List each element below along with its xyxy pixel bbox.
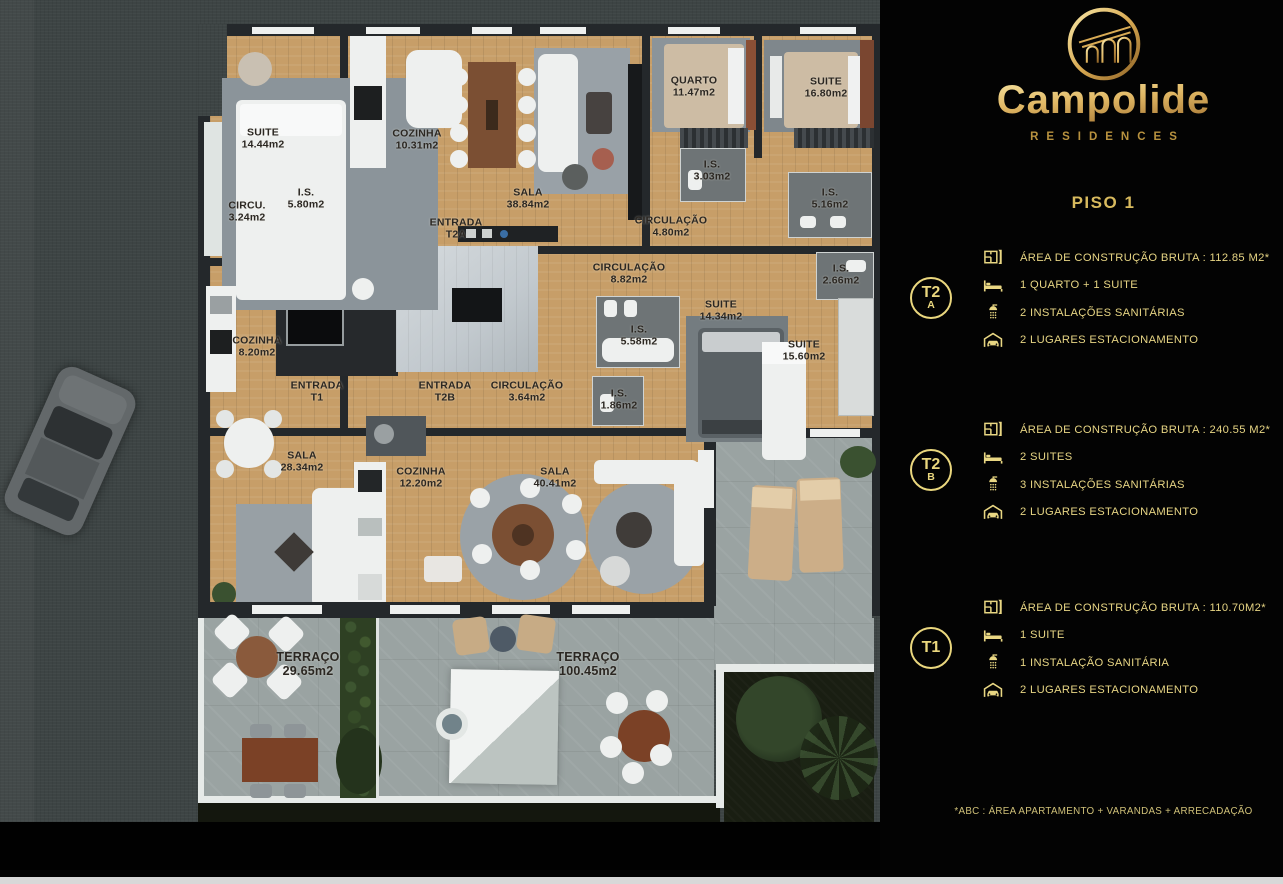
plan-shape: [985, 636, 1002, 639]
room-area: 40.41m2: [534, 478, 577, 490]
plan-shape: [989, 478, 997, 482]
spec-row: ÁREA DE CONSTRUÇÃO BRUTA : 110.70M2*: [980, 594, 1279, 622]
plan-shape: [358, 574, 382, 600]
room-name: I.S.: [601, 388, 638, 400]
plan-shape: [680, 128, 748, 148]
room-label: I.S.3.03m2: [694, 159, 731, 183]
plan-shape: [714, 618, 874, 670]
plan-shape: [592, 148, 614, 170]
plan-shape: [492, 605, 550, 614]
plan-shape: [500, 230, 508, 238]
parking-icon: [980, 679, 1006, 701]
room-name: SALA: [507, 187, 550, 199]
plan-shape: [252, 27, 314, 34]
room-label: ENTRADAT2A: [430, 217, 483, 241]
wardrobe: [838, 298, 874, 416]
room-name: SUITE: [805, 76, 848, 88]
plan-shape: [984, 424, 996, 435]
room-label: TERRAÇO100.45m2: [556, 650, 619, 678]
unit-spec-t1: T1ÁREA DE CONSTRUÇÃO BRUTA : 110.70M2*1 …: [880, 592, 1283, 704]
plan-shape: [450, 150, 468, 168]
plan-shape: [830, 216, 846, 228]
plan-shape: [800, 479, 841, 500]
badge-sublabel: B: [927, 472, 935, 483]
room-name: ENTRADA: [419, 380, 472, 392]
plan-shape: [604, 300, 617, 317]
plan-shape: [985, 631, 1002, 642]
spec-row: 2 LUGARES ESTACIONAMENTO: [980, 499, 1279, 527]
spec-row: ÁREA DE CONSTRUÇÃO BRUTA : 112.85 M2*: [980, 244, 1279, 272]
plan-shape: [198, 618, 204, 800]
plan-shape: [840, 446, 876, 478]
unit-badge: T1: [910, 627, 952, 669]
room-name: TERRAÇO: [276, 650, 339, 664]
plan-shape: [993, 305, 997, 306]
sofa: [538, 54, 578, 172]
plan-shape: [986, 455, 990, 457]
plan-shape: [1079, 27, 1130, 63]
room-area: 2.66m2: [823, 275, 860, 287]
plan-shape: [668, 27, 720, 34]
room-name: SUITE: [700, 299, 743, 311]
plan-shape: [512, 524, 534, 546]
room-area: 5.16m2: [812, 199, 849, 211]
plan-shape: [238, 52, 272, 86]
spec-row: 2 LUGARES ESTACIONAMENTO: [980, 327, 1279, 355]
plan-shape: [983, 475, 1003, 495]
room-area: 1.86m2: [601, 400, 638, 412]
plan-shape: [984, 602, 990, 613]
room-area: 4.80m2: [635, 227, 708, 239]
spec-row: 1 SUITE: [980, 622, 1279, 650]
kitchen-island: [406, 50, 462, 128]
plan-shape: [1086, 46, 1097, 62]
plan-shape: [516, 614, 557, 655]
plan-shape: [989, 694, 991, 696]
plan-shape: [376, 618, 379, 798]
room-name: COZINHA: [232, 335, 281, 347]
room-label: TERRAÇO29.65m2: [276, 650, 339, 678]
plan-shape: [728, 48, 744, 124]
room-area: T2A: [430, 229, 483, 241]
info-panel: Campolide RESIDENCES PISO 1 *ABC : ÁREA …: [880, 0, 1283, 884]
plan-shape: [982, 624, 1004, 646]
plan-shape: [450, 68, 468, 86]
room-label: SUITE14.34m2: [700, 299, 743, 323]
plan-shape: [198, 796, 720, 803]
plan-shape: [354, 86, 382, 120]
plan-shape: [990, 489, 992, 491]
plan-shape: [982, 501, 1004, 523]
room-area: 100.45m2: [556, 664, 619, 678]
plan-shape: [450, 96, 468, 114]
room-name: SUITE: [783, 339, 826, 351]
room-label: COZINHA8.20m2: [232, 335, 281, 359]
plan-shape: [216, 410, 234, 428]
badge-label: T2: [922, 457, 941, 472]
room-label: COZINHA12.20m2: [396, 466, 445, 490]
room-label: QUARTO11.47m2: [671, 75, 718, 99]
unit-spec-t2b: T2BÁREA DE CONSTRUÇÃO BRUTA : 240.55 M2*…: [880, 414, 1283, 526]
room-label: CIRCULAÇÃO3.64m2: [491, 380, 564, 404]
plan-shape: [986, 283, 990, 285]
plan-shape: [810, 429, 860, 437]
room-area: 8.20m2: [232, 347, 281, 359]
plan-shape: [985, 286, 1002, 289]
unit-spec-t2a: T2AÁREA DE CONSTRUÇÃO BRUTA : 112.85 M2*…: [880, 242, 1283, 354]
spec-text: 2 INSTALAÇÕES SANITÁRIAS: [1020, 307, 1185, 319]
plan-shape: [995, 667, 997, 669]
plan-shape: [472, 544, 492, 564]
plan-shape: [989, 655, 997, 668]
fountain: [436, 708, 468, 740]
plan-shape: [284, 784, 306, 798]
room-area: 29.65m2: [276, 664, 339, 678]
room-label: SALA38.84m2: [507, 187, 550, 211]
plan-shape: [746, 40, 756, 130]
room-name: I.S.: [288, 187, 325, 199]
shower-icon: [980, 475, 1006, 495]
plan-shape: [992, 664, 994, 666]
room-area: 3.03m2: [694, 171, 731, 183]
room-label: SUITE15.60m2: [783, 339, 826, 363]
room-area: 14.44m2: [242, 139, 285, 151]
plan-shape: [622, 762, 644, 784]
room-label: I.S.5.16m2: [812, 187, 849, 211]
palm-tree: [800, 716, 878, 800]
badge-sublabel: A: [927, 300, 935, 311]
plan-shape: [0, 822, 880, 884]
room-label: I.S.2.66m2: [823, 263, 860, 287]
aqueduct-logo-icon: [1065, 5, 1143, 83]
plan-shape: [987, 513, 998, 519]
plan-shape: [983, 653, 1003, 673]
spec-row: 1 INSTALAÇÃO SANITÁRIA: [980, 649, 1279, 677]
plan-shape: [998, 250, 1001, 264]
room-label: SALA40.41m2: [534, 466, 577, 490]
plan-shape: [518, 150, 536, 168]
room-name: I.S.: [621, 324, 658, 336]
room-area: 12.20m2: [396, 478, 445, 490]
plan-shape: [996, 344, 998, 346]
plan-shape: [982, 679, 1004, 701]
plan-shape: [990, 312, 996, 319]
room-name: QUARTO: [671, 75, 718, 87]
plan-shape: [698, 450, 714, 508]
room-name: CIRCULAÇÃO: [635, 215, 708, 227]
plan-shape: [992, 314, 994, 316]
floorplan-icon: [980, 419, 1006, 440]
plan-shape: [216, 460, 234, 478]
plan-shape: [1069, 10, 1138, 79]
parking-icon: [980, 501, 1006, 523]
room-area: 5.58m2: [621, 336, 658, 348]
plan-shape: [987, 341, 998, 347]
plan-shape: [562, 494, 582, 514]
spec-text: 2 LUGARES ESTACIONAMENTO: [1020, 684, 1198, 696]
plan-shape: [995, 314, 997, 316]
floorplan-icon: [980, 597, 1006, 618]
plan-shape: [984, 252, 990, 263]
floorplan-render: SUITE14.44m2COZINHA10.31m2CIRCU.3.24m2I.…: [0, 0, 880, 884]
plan-shape: [984, 252, 996, 263]
room-label: CIRCULAÇÃO4.80m2: [635, 215, 708, 239]
plan-shape: [482, 229, 492, 238]
plan-shape: [990, 317, 992, 319]
elevator: [452, 288, 502, 322]
spec-row: 3 INSTALAÇÕES SANITÁRIAS: [980, 471, 1279, 499]
room-name: ENTRADA: [291, 380, 344, 392]
spec-text: 2 SUITES: [1020, 451, 1073, 463]
spec-text: 1 INSTALAÇÃO SANITÁRIA: [1020, 657, 1169, 669]
plan-shape: [210, 330, 232, 354]
plan-shape: [284, 724, 306, 738]
room-label: SUITE16.80m2: [805, 76, 848, 100]
plan-shape: [752, 487, 793, 509]
floorplan-icon: [980, 247, 1006, 268]
plan-shape: [716, 664, 724, 808]
room-name: SALA: [534, 466, 577, 478]
room-area: T1: [291, 392, 344, 404]
plan-shape: [572, 605, 630, 614]
plan-shape: [650, 744, 672, 766]
plan-shape: [860, 40, 874, 132]
room-area: 16.80m2: [805, 88, 848, 100]
room-name: CIRCULAÇÃO: [491, 380, 564, 392]
plan-shape: [987, 691, 998, 697]
plan-shape: [992, 317, 994, 319]
plan-shape: [606, 692, 628, 714]
plan-shape: [998, 600, 1001, 614]
spec-text: 2 LUGARES ESTACIONAMENTO: [1020, 334, 1198, 346]
plan-shape: [566, 540, 586, 560]
plan-shape: [990, 484, 992, 486]
shower-icon: [980, 653, 1006, 673]
plan-shape: [1102, 39, 1114, 62]
unit-badge: T2B: [910, 449, 952, 491]
plan-shape: [990, 312, 992, 314]
plan-shape: [989, 306, 997, 310]
room-label: I.S.1.86m2: [601, 388, 638, 412]
plan-shape: [983, 247, 1004, 268]
room-label: ENTRADAT2B: [419, 380, 472, 404]
room-area: T2B: [419, 392, 472, 404]
bed-icon: [980, 274, 1006, 296]
spec-text: 2 LUGARES ESTACIONAMENTO: [1020, 506, 1198, 518]
bed-icon: [980, 446, 1006, 468]
spec-text: 1 QUARTO + 1 SUITE: [1020, 279, 1138, 291]
plan-shape: [358, 470, 382, 492]
plan-shape: [993, 477, 997, 478]
room-name: COZINHA: [396, 466, 445, 478]
plan-shape: [800, 216, 816, 228]
plan-shape: [0, 0, 34, 830]
plan-shape: [990, 662, 996, 669]
plan-shape: [984, 424, 990, 435]
room-label: I.S.5.58m2: [621, 324, 658, 348]
plan-shape: [985, 281, 1002, 292]
plan-shape: [990, 667, 992, 669]
plan-shape: [983, 419, 1004, 440]
room-area: 8.82m2: [593, 274, 666, 286]
plan-shape: [624, 300, 637, 317]
terrace-table: [242, 738, 318, 782]
room-name: CIRCULAÇÃO: [593, 262, 666, 274]
plan-shape: [540, 27, 586, 34]
plan-shape: [996, 694, 998, 696]
plan-shape: [198, 803, 720, 823]
plan-shape: [848, 56, 860, 124]
spec-text: 3 INSTALAÇÕES SANITÁRIAS: [1020, 479, 1185, 491]
spec-text: ÁREA DE CONSTRUÇÃO BRUTA : 240.55 M2*: [1020, 424, 1270, 436]
plan-shape: [374, 424, 394, 444]
room-label: SUITE14.44m2: [242, 127, 285, 151]
shower-icon: [980, 303, 1006, 323]
plan-shape: [518, 96, 536, 114]
plan-shape: [616, 512, 652, 548]
plan-shape: [352, 278, 374, 300]
room-label: CIRCU.3.24m2: [228, 200, 265, 224]
room-name: I.S.: [812, 187, 849, 199]
room-area: 28.34m2: [281, 462, 324, 474]
plan-shape: [992, 484, 994, 486]
plan-shape: [600, 736, 622, 758]
plan-shape: [995, 312, 997, 314]
floor-title: PISO 1: [924, 193, 1283, 213]
plan-shape: [264, 410, 282, 428]
spec-text: ÁREA DE CONSTRUÇÃO BRUTA : 110.70M2*: [1020, 602, 1266, 614]
plan-shape: [989, 305, 997, 318]
plan-shape: [996, 516, 998, 518]
plan-shape: [518, 124, 536, 142]
room-name: TERRAÇO: [556, 650, 619, 664]
plan-shape: [490, 626, 516, 652]
plan-shape: [600, 556, 630, 586]
room-area: 5.80m2: [288, 199, 325, 211]
plan-shape: [358, 518, 382, 536]
spec-row: ÁREA DE CONSTRUÇÃO BRUTA : 240.55 M2*: [980, 416, 1279, 444]
plan-shape: [995, 662, 997, 664]
plan-shape: [452, 616, 491, 656]
room-name: I.S.: [823, 263, 860, 275]
plan-shape: [472, 27, 512, 34]
plan-shape: [990, 314, 992, 316]
room-area: 3.24m2: [228, 212, 265, 224]
plan-shape: [983, 303, 1003, 323]
plan-shape: [770, 56, 782, 118]
plan-shape: [586, 92, 612, 134]
spec-text: 1 SUITE: [1020, 629, 1065, 641]
badge-label: T2: [922, 285, 941, 300]
plan-shape: [989, 516, 991, 518]
footnote: *ABC : ÁREA APARTAMENTO + VARANDAS + ARR…: [924, 806, 1283, 817]
plan-shape: [1118, 38, 1130, 63]
room-label: SALA28.34m2: [281, 450, 324, 474]
plan-shape: [486, 100, 498, 130]
plan-shape: [518, 68, 536, 86]
plan-shape: [990, 664, 992, 666]
plan-shape: [366, 27, 420, 34]
plan-shape: [983, 597, 1004, 618]
plan-shape: [995, 489, 997, 491]
room-name: I.S.: [694, 159, 731, 171]
plan-shape: [985, 453, 1002, 464]
plan-shape: [982, 329, 1004, 351]
plan-shape: [989, 344, 991, 346]
spec-row: 1 QUARTO + 1 SUITE: [980, 272, 1279, 300]
room-name: COZINHA: [392, 128, 441, 140]
spec-row: 2 INSTALAÇÕES SANITÁRIAS: [980, 299, 1279, 327]
plan-shape: [989, 656, 997, 660]
plan-shape: [995, 484, 997, 486]
room-area: 14.34m2: [700, 311, 743, 323]
plan-shape: [995, 486, 997, 488]
bed-icon: [980, 624, 1006, 646]
brand-subtitle: RESIDENCES: [924, 131, 1283, 143]
room-label: CIRCULAÇÃO8.82m2: [593, 262, 666, 286]
plan-shape: [992, 486, 994, 488]
plan-shape: [562, 164, 588, 190]
plan-shape: [520, 560, 540, 580]
badge-label: T1: [922, 640, 941, 655]
room-label: I.S.5.80m2: [288, 187, 325, 211]
room-area: 11.47m2: [671, 87, 718, 99]
spec-text: ÁREA DE CONSTRUÇÃO BRUTA : 112.85 M2*: [1020, 252, 1269, 264]
room-area: 10.31m2: [392, 140, 441, 152]
spec-rows: ÁREA DE CONSTRUÇÃO BRUTA : 110.70M2*1 SU…: [980, 594, 1279, 704]
plan-shape: [794, 128, 874, 148]
plan-shape: [210, 296, 232, 314]
room-area: 3.64m2: [491, 392, 564, 404]
plan-shape: [990, 484, 996, 491]
room-name: SALA: [281, 450, 324, 462]
spec-rows: ÁREA DE CONSTRUÇÃO BRUTA : 240.55 M2*2 S…: [980, 416, 1279, 526]
plan-shape: [990, 662, 992, 664]
plan-shape: [993, 655, 997, 656]
spec-row: 2 SUITES: [980, 444, 1279, 472]
plan-shape: [800, 27, 856, 34]
plan-shape: [982, 274, 1004, 296]
plan-shape: [470, 488, 490, 508]
media-unit: [628, 64, 642, 220]
plan-shape: [450, 124, 468, 142]
plan-shape: [250, 724, 272, 738]
brand-name: Campolide: [924, 78, 1283, 123]
plan-shape: [986, 633, 990, 635]
plan-shape: [646, 690, 668, 712]
plan-shape: [985, 458, 1002, 461]
plan-shape: [992, 312, 994, 314]
plan-shape: [390, 605, 460, 614]
room-area: 38.84m2: [507, 199, 550, 211]
plan-shape: [716, 664, 874, 672]
spec-row: 2 LUGARES ESTACIONAMENTO: [980, 677, 1279, 705]
plan-shape: [982, 446, 1004, 468]
plan-shape: [992, 667, 994, 669]
plan-shape: [989, 477, 997, 490]
plan-shape: [990, 486, 992, 488]
plan-shape: [995, 317, 997, 319]
bottom-strip: [0, 877, 1283, 884]
room-name: CIRCU.: [228, 200, 265, 212]
brochure-page: SUITE14.44m2COZINHA10.31m2CIRCU.3.24m2I.…: [0, 0, 1283, 884]
plan-shape: [992, 489, 994, 491]
plan-shape: [992, 662, 994, 664]
plan-shape: [424, 556, 462, 582]
plan-shape: [250, 784, 272, 798]
unit-badge: T2A: [910, 277, 952, 319]
plan-shape: [984, 602, 996, 613]
